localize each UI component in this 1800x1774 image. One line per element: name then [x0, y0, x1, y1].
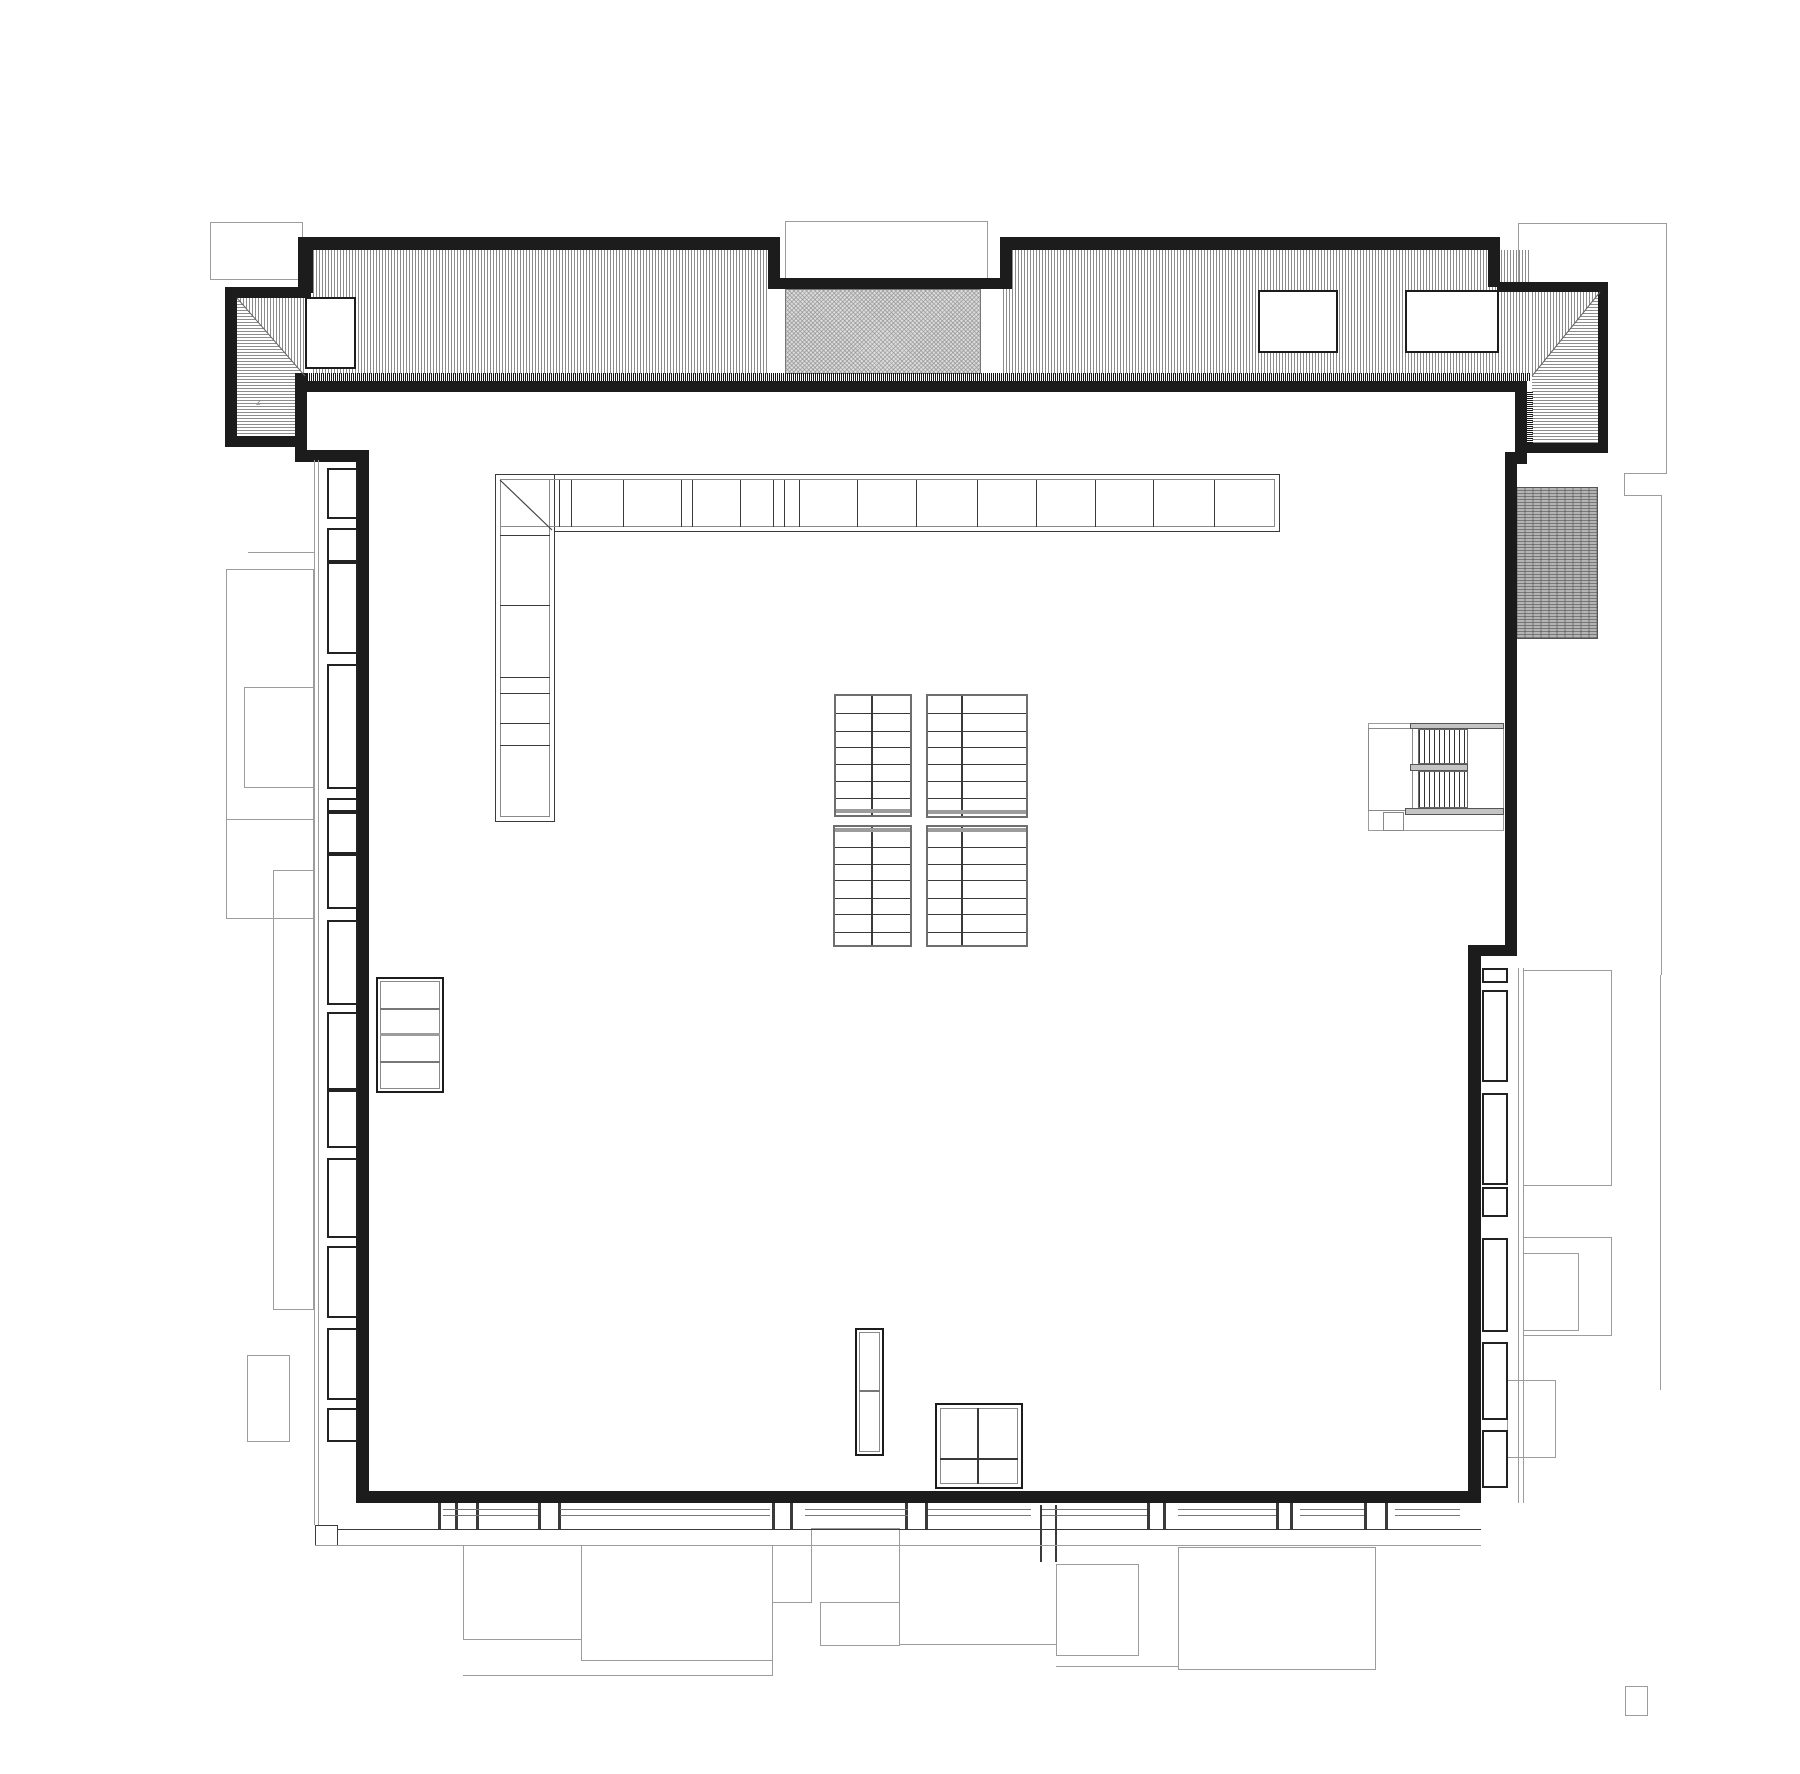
square-table-inner: [940, 1408, 1018, 1484]
sill-div-14: [1364, 1503, 1367, 1530]
display-table-tr-row-4: [928, 764, 1026, 765]
window-niche-left-8: [327, 920, 358, 1005]
window-niche-left-7: [327, 854, 358, 909]
sill-div-8: [905, 1503, 908, 1530]
window-niche-left-12: [327, 1246, 358, 1318]
wall-topleft-h: [225, 287, 311, 298]
window-niche-left-9: [327, 1012, 358, 1090]
context-topright-line-3: [1624, 473, 1667, 474]
context-left-line: [248, 552, 314, 553]
context-left-building-2: [244, 687, 314, 788]
wall-topleft-bottom: [225, 436, 298, 447]
display-table-bl-bar: [835, 828, 910, 832]
facade-skin-left-1: [314, 460, 315, 1525]
wall-right-lower: [1468, 950, 1481, 1503]
display-table-br-row-1: [928, 847, 1026, 848]
context-top-bay: [785, 221, 988, 279]
window-niche-right-1: [1482, 968, 1508, 983]
wall-topleft-v: [225, 287, 237, 447]
shelf-div-8: [784, 480, 785, 527]
window-niche-right-3: [1482, 1093, 1508, 1185]
context-bottom-building-4: [1178, 1547, 1376, 1670]
display-table-br-divider: [961, 827, 963, 945]
wall-ext-right: [1598, 282, 1608, 453]
facade-skin-left-2: [318, 460, 319, 1525]
window-niche-left-1: [327, 468, 358, 519]
window-niche-left-3: [327, 562, 358, 654]
shelf-vdiv-3: [500, 677, 550, 678]
window-niche-left-2: [327, 528, 358, 562]
sill-glass-2b: [560, 1515, 770, 1516]
display-table-bl-divider: [871, 827, 873, 945]
sill-div-15: [1385, 1503, 1388, 1530]
display-table-br-row-6: [928, 932, 1026, 933]
shelf-div-2: [571, 480, 572, 527]
side-shelf-div-1: [380, 1008, 440, 1010]
context-porch-line-4: [899, 1644, 1056, 1645]
context-right-line-1: [1661, 495, 1662, 975]
skylight-window-right-1: [1258, 290, 1338, 353]
shelf-vdiv-2: [500, 605, 550, 606]
shelf-vdiv-4: [500, 693, 550, 694]
sill-glass-5b: [1042, 1515, 1147, 1516]
wall-inner-top: [297, 381, 1527, 392]
context-left-divider: [226, 819, 314, 820]
context-left-building-4: [247, 1355, 290, 1442]
cabinet-inner: [859, 1332, 880, 1452]
context-bottomright-building-2: [1625, 1686, 1648, 1716]
display-table-tr-row-3: [928, 747, 1026, 748]
wall-topleft-step: [298, 237, 313, 293]
shelf-vdiv-5: [500, 723, 550, 724]
square-table-cross-v: [977, 1408, 979, 1484]
wall-right-v1: [1515, 392, 1527, 464]
shelf-div-1: [559, 480, 560, 527]
wall-shelf-h-inner: [500, 479, 1275, 527]
wall-shelf-v-inner: [500, 479, 550, 817]
display-table-tl-row-1: [836, 713, 910, 714]
window-niche-left-6: [327, 812, 358, 854]
stair-treads-lower: [1418, 771, 1468, 808]
context-bottom-building-3: [1056, 1564, 1139, 1656]
context-bottom-step-h: [772, 1602, 812, 1603]
shelf-div-11: [916, 480, 917, 527]
comb-edge-right: [1527, 392, 1533, 443]
shelf-div-16: [1214, 480, 1215, 527]
context-right-building-1: [1523, 970, 1612, 1186]
shelf-div-4: [681, 480, 682, 527]
context-topright-line-4: [1624, 473, 1625, 496]
stair-left-box: [1368, 728, 1413, 811]
sill-div-2: [455, 1503, 458, 1530]
sill-glass-3b: [805, 1515, 908, 1516]
display-table-br: [926, 825, 1028, 947]
window-niche-left-14: [327, 1408, 358, 1442]
context-right-building-3: [1523, 1253, 1579, 1331]
context-topright-line-5: [1624, 495, 1662, 496]
sill-glass-3a: [805, 1509, 908, 1510]
window-niche-right-4: [1482, 1187, 1508, 1217]
context-bottom-building-1: [463, 1545, 582, 1640]
sill-glass-1a: [443, 1509, 538, 1510]
display-table-tl-row-4: [836, 764, 910, 765]
display-table-tr-row-6: [928, 798, 1026, 799]
shelf-div-3: [623, 480, 624, 527]
sill-div-13: [1290, 1503, 1293, 1530]
window-niche-right-5: [1482, 1238, 1508, 1332]
sill-div-1: [438, 1503, 441, 1530]
display-table-tl-row-5: [836, 781, 910, 782]
sill-div-9: [925, 1503, 928, 1530]
sill-glass-8a: [1395, 1509, 1460, 1510]
roof-hatch-band-left: [313, 250, 768, 374]
shelf-div-5: [692, 480, 693, 527]
facade-skin-right-1: [1518, 968, 1519, 1503]
display-table-tr-divider: [961, 696, 963, 816]
sill-glass-4a: [928, 1509, 1031, 1510]
window-niche-left-5: [327, 798, 358, 812]
sill-div-4: [538, 1503, 541, 1530]
sill-glass-4b: [928, 1515, 1031, 1516]
sill-outer-line: [315, 1545, 1481, 1546]
sill-div-11: [1163, 1503, 1166, 1530]
sill-band-line: [337, 1529, 1481, 1530]
window-niche-left-11: [327, 1158, 358, 1238]
wall-top-end: [1488, 237, 1500, 287]
shelf-vdiv-6: [500, 745, 550, 746]
canopy-gray-panel: [785, 289, 981, 374]
window-niche-right-6: [1482, 1342, 1508, 1420]
wall-ext-top: [1497, 282, 1608, 292]
comb-edge-top: [305, 373, 1530, 381]
display-table-tr-row-5: [928, 781, 1026, 782]
sill-div-7: [790, 1503, 793, 1530]
plan-annotation-mark: z: [256, 398, 270, 409]
wall-notch-bottom: [768, 278, 1012, 289]
sill-div-6: [772, 1503, 775, 1530]
context-topright-line-1: [1518, 223, 1666, 224]
context-topright-line-2: [1666, 223, 1667, 474]
context-bottom-line: [463, 1675, 773, 1676]
display-table-tl-divider: [871, 696, 873, 815]
skylight-window-right-2: [1405, 290, 1499, 353]
entrance-door-jamb-2: [1055, 1505, 1057, 1562]
display-table-tl-row-2: [836, 731, 910, 732]
window-niche-left-13: [327, 1328, 358, 1400]
display-table-br-bar: [928, 828, 1026, 832]
shelf-div-15: [1153, 480, 1154, 527]
stair-rail-top: [1410, 723, 1504, 729]
wall-top-2: [1000, 237, 1498, 250]
window-niche-left-4: [327, 664, 358, 789]
sill-glass-7a: [1300, 1509, 1364, 1510]
context-porch-step: [820, 1602, 900, 1646]
display-table-tr-row-2: [928, 731, 1026, 732]
display-table-br-row-5: [928, 914, 1026, 915]
wall-right-upper: [1505, 462, 1517, 956]
skylight-window-left: [305, 297, 356, 369]
hatched-block-right: [1515, 487, 1598, 639]
shelf-vdiv-1: [500, 535, 550, 536]
context-right-line-2: [1660, 975, 1661, 1390]
sill-glass-7b: [1300, 1515, 1364, 1516]
wall-ext-bottom: [1527, 443, 1608, 453]
context-bottom-building-2: [581, 1545, 773, 1661]
floor-plan-canvas: z: [0, 0, 1800, 1774]
display-table-br-row-4: [928, 898, 1026, 899]
facade-skin-right-2: [1523, 968, 1524, 1503]
sill-glass-8b: [1395, 1515, 1460, 1516]
display-table-tr-bar: [928, 810, 1026, 814]
cabinet-divider: [859, 1390, 880, 1392]
display-table-tl-row-6: [836, 798, 910, 799]
side-shelf-div-3: [380, 1061, 440, 1063]
sill-div-3: [476, 1503, 479, 1530]
context-porch-line-1: [811, 1528, 812, 1603]
sill-div-12: [1276, 1503, 1279, 1530]
shelf-div-7: [773, 480, 774, 527]
shelf-div-6: [740, 480, 741, 527]
shelf-div-9: [799, 480, 800, 527]
context-bottom-step-v: [772, 1602, 773, 1676]
sill-div-5: [558, 1503, 561, 1530]
context-bottomright-building-1: [1507, 1380, 1556, 1458]
stair-rail-bottom: [1405, 808, 1504, 815]
sill-glass-1b: [443, 1515, 538, 1516]
sill-glass-6b: [1178, 1515, 1276, 1516]
display-table-br-row-3: [928, 880, 1026, 881]
display-table-tl-bar: [836, 809, 910, 813]
sill-glass-6a: [1178, 1509, 1276, 1510]
sill-glass-2a: [560, 1509, 770, 1510]
sill-corner-square: [315, 1525, 338, 1546]
window-niche-left-10: [327, 1090, 358, 1148]
shelf-div-13: [1036, 480, 1037, 527]
stair-treads-upper: [1418, 729, 1468, 764]
shelf-div-12: [977, 480, 978, 527]
context-topleft-building: [210, 222, 303, 280]
context-bottom-line-2: [1056, 1666, 1178, 1667]
display-table-tr-row-1: [928, 713, 1026, 714]
display-table-tl-row-3: [836, 747, 910, 748]
display-table-br-row-2: [928, 864, 1026, 865]
wall-bottom: [356, 1491, 1481, 1503]
window-niche-right-2: [1482, 990, 1508, 1082]
square-table-cross-h: [940, 1458, 1018, 1460]
shelf-div-14: [1095, 480, 1096, 527]
shelf-div-10: [857, 480, 858, 527]
window-niche-right-7: [1482, 1430, 1508, 1488]
stair-rail-mid: [1410, 764, 1468, 771]
sill-div-10: [1147, 1503, 1150, 1530]
side-shelf-div-2: [380, 1033, 440, 1036]
stair-landing-square: [1383, 812, 1404, 831]
wall-top-1: [310, 237, 768, 250]
sill-glass-5a: [1042, 1509, 1147, 1510]
entrance-door-jamb-1: [1040, 1505, 1042, 1562]
context-left-building-3: [273, 870, 314, 1310]
